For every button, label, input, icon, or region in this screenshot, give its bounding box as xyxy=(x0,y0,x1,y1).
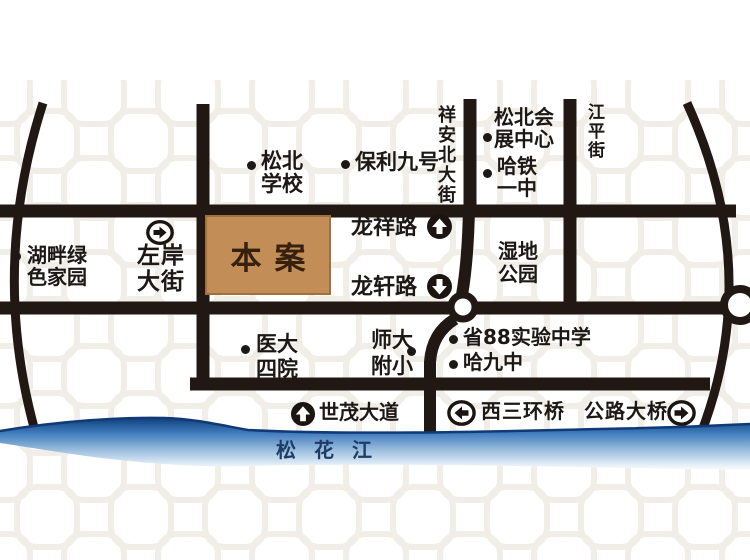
poi-songbei-school: 松北 学校 xyxy=(261,150,303,195)
up-arrow-icon xyxy=(290,401,316,427)
poi-label: 学校 xyxy=(261,173,303,196)
down-arrow-icon xyxy=(426,273,453,300)
poi-label: 色家园 xyxy=(27,267,87,289)
poi-bullet-icon xyxy=(247,161,256,170)
poi-label: 四院 xyxy=(256,357,298,382)
street-label-highway-bridge: 公路大桥 xyxy=(584,401,668,423)
poi-label: 附小 xyxy=(371,354,413,380)
poi-harbin-no9-middle: 哈九中 xyxy=(463,352,523,374)
poi-wetland-park: 湿地 公园 xyxy=(498,240,538,286)
poi-label: 哈铁 xyxy=(497,156,537,178)
poi-bullet-icon xyxy=(483,133,492,142)
roundabout-left xyxy=(451,295,475,319)
street-label-shimao: 世茂大道 xyxy=(319,402,399,424)
project-site-label: 本案 xyxy=(231,233,319,278)
poi-lakeside-green-home: 湖畔绿 色家园 xyxy=(27,245,87,288)
street-label-longxiang: 龙祥路 xyxy=(351,216,417,240)
poi-bullet-icon xyxy=(449,335,458,344)
right-arrow-icon xyxy=(146,220,174,245)
poi-bullet-icon xyxy=(483,169,492,178)
poi-medical-univ-4th-hospital: 医大 四院 xyxy=(256,332,298,382)
poi-label: 展中心 xyxy=(494,129,554,151)
street-label-west-third-ring: 西三环桥 xyxy=(481,401,565,423)
street-label-longxuan: 龙轩路 xyxy=(351,276,417,300)
up-arrow-icon xyxy=(426,213,453,240)
poi-bullet-icon xyxy=(12,252,21,261)
location-map: 松北 学校 保利九号 祥安北大街 松北会 展中心 哈铁 一中 江平街 湖畔绿 色… xyxy=(0,0,750,560)
poi-bullet-icon xyxy=(241,345,250,354)
roundabout-right xyxy=(724,289,750,321)
poi-label: 保利九号 xyxy=(355,150,439,174)
river-name-label: 松花江 xyxy=(276,434,390,463)
street-label-line: 大街 xyxy=(137,269,185,295)
poi-bullet-icon xyxy=(341,160,350,169)
poi-songbei-convention-center: 松北会 展中心 xyxy=(494,107,554,150)
poi-bullet-icon xyxy=(449,360,458,369)
right-arrow-icon xyxy=(667,400,696,426)
poi-label: 松北会 xyxy=(494,107,554,129)
street-label-xiangan-north: 祥安北大街 xyxy=(432,105,458,205)
poi-provincial-88-school: 省88实验中学 xyxy=(463,327,591,349)
road-xiangan-north-mid xyxy=(462,208,469,295)
poi-label: 公园 xyxy=(498,263,538,286)
left-arrow-icon xyxy=(447,400,476,426)
poi-label: 湖畔绿 xyxy=(27,245,87,267)
poi-baoli-no9: 保利九号 xyxy=(355,151,439,174)
poi-hatie-no1-middle: 哈铁 一中 xyxy=(497,156,537,199)
street-label-jiangping: 江平街 xyxy=(582,103,607,160)
street-label-zuoan: 左岸 大街 xyxy=(137,243,185,296)
poi-label: 一中 xyxy=(497,178,537,200)
poi-bullet-icon xyxy=(407,347,416,356)
poi-label: 松北 xyxy=(261,150,303,173)
poi-label: 医大 xyxy=(256,332,298,357)
project-site-box: 本案 xyxy=(205,215,331,295)
street-label-line: 左岸 xyxy=(137,243,185,269)
poi-label: 湿地 xyxy=(498,240,538,263)
